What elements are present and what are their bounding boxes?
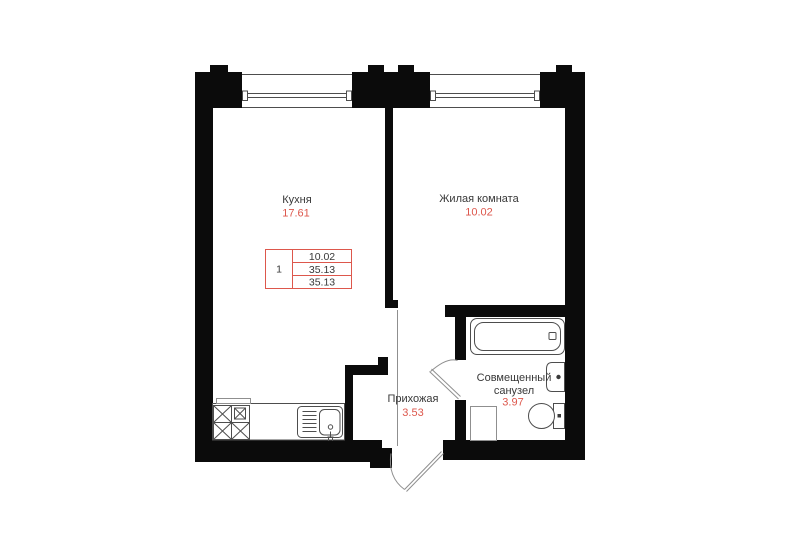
toilet-icon: [529, 404, 565, 429]
toilet-button: [558, 414, 562, 418]
window-end-cap: [347, 91, 352, 101]
kitchen-area: 17.61: [282, 208, 310, 220]
legend-table: 1 10.02 35.13 35.13: [266, 250, 352, 289]
burner-cross: [214, 423, 232, 440]
facade-tab-2: [368, 65, 384, 73]
door-leaf: [405, 452, 444, 492]
kitchen-sink-icon: [298, 407, 343, 442]
facade-tab-1: [210, 65, 228, 73]
wall-left: [195, 72, 213, 462]
wall-bathroom-left-lower: [455, 400, 466, 448]
facade-tab-4: [556, 65, 572, 73]
kitchen-room: Кухня 17.61: [282, 194, 312, 220]
hallway-label: Прихожая: [388, 393, 439, 405]
wall-right: [565, 72, 585, 460]
interior-walls: [345, 107, 585, 448]
toilet-bowl: [529, 404, 555, 429]
entrance-door: [390, 452, 443, 492]
facade-tab-3: [398, 65, 414, 73]
hallway-area: 3.53: [402, 407, 423, 419]
sink-basin: [320, 410, 341, 436]
floorplan-svg: Кухня 17.61 Жилая комната 10.02 Прихожая…: [0, 0, 800, 556]
kitchen-label: Кухня: [282, 194, 311, 206]
living-room: Жилая комната 10.02: [439, 193, 519, 219]
bathroom-label-line2: санузел: [494, 385, 534, 397]
window-living-room: [430, 75, 540, 108]
drainboard-lines: [303, 412, 317, 432]
wall-hallway-left: [345, 375, 353, 442]
legend-total-area: 35.13: [309, 264, 335, 276]
sink-drain: [328, 425, 332, 429]
vent-bar: [217, 399, 251, 404]
bathtub-drain: [549, 333, 556, 340]
bathtub-outer: [471, 319, 565, 355]
floorplan-image: Кухня 17.61 Жилая комната 10.02 Прихожая…: [0, 0, 800, 556]
wall-bottom-left: [195, 440, 382, 462]
wall-kitchen-living-divider: [385, 107, 393, 308]
living-room-area: 10.02: [465, 207, 493, 219]
door-swing-arc: [390, 454, 404, 490]
wall-center-pillar: [352, 72, 430, 108]
entrance-left-jamb: [370, 448, 392, 468]
wall-divider-foot: [385, 300, 398, 308]
window-end-cap: [431, 91, 436, 101]
window-kitchen: [242, 75, 352, 108]
washbasin-tap: [556, 375, 560, 379]
burner-cross: [235, 408, 246, 419]
burner-cross: [214, 406, 232, 423]
bathroom-room: Совмещенный санузел 3.97: [477, 372, 552, 409]
stove-icon: [214, 406, 250, 440]
window-end-cap: [243, 91, 248, 101]
door-swing-arc: [431, 360, 458, 372]
bathtub-icon: [471, 319, 565, 355]
kitchen-counter: [213, 399, 345, 441]
bathroom-label-line1: Совмещенный: [477, 372, 552, 384]
hallway-room: Прихожая 3.53: [388, 393, 439, 419]
legend-living-area: 10.02: [309, 251, 335, 263]
living-room-label: Жилая комната: [439, 193, 519, 205]
legend-total-area-2: 35.13: [309, 277, 335, 289]
wall-hallway-tick: [378, 357, 388, 375]
bathroom-area: 3.97: [502, 397, 523, 409]
bathtub-inner: [475, 323, 561, 351]
window-end-cap: [535, 91, 540, 101]
wall-bathroom-left-upper: [455, 311, 466, 360]
burner-cross: [232, 423, 250, 440]
washing-machine-icon: [471, 407, 497, 441]
legend-rooms-count: 1: [276, 264, 282, 276]
